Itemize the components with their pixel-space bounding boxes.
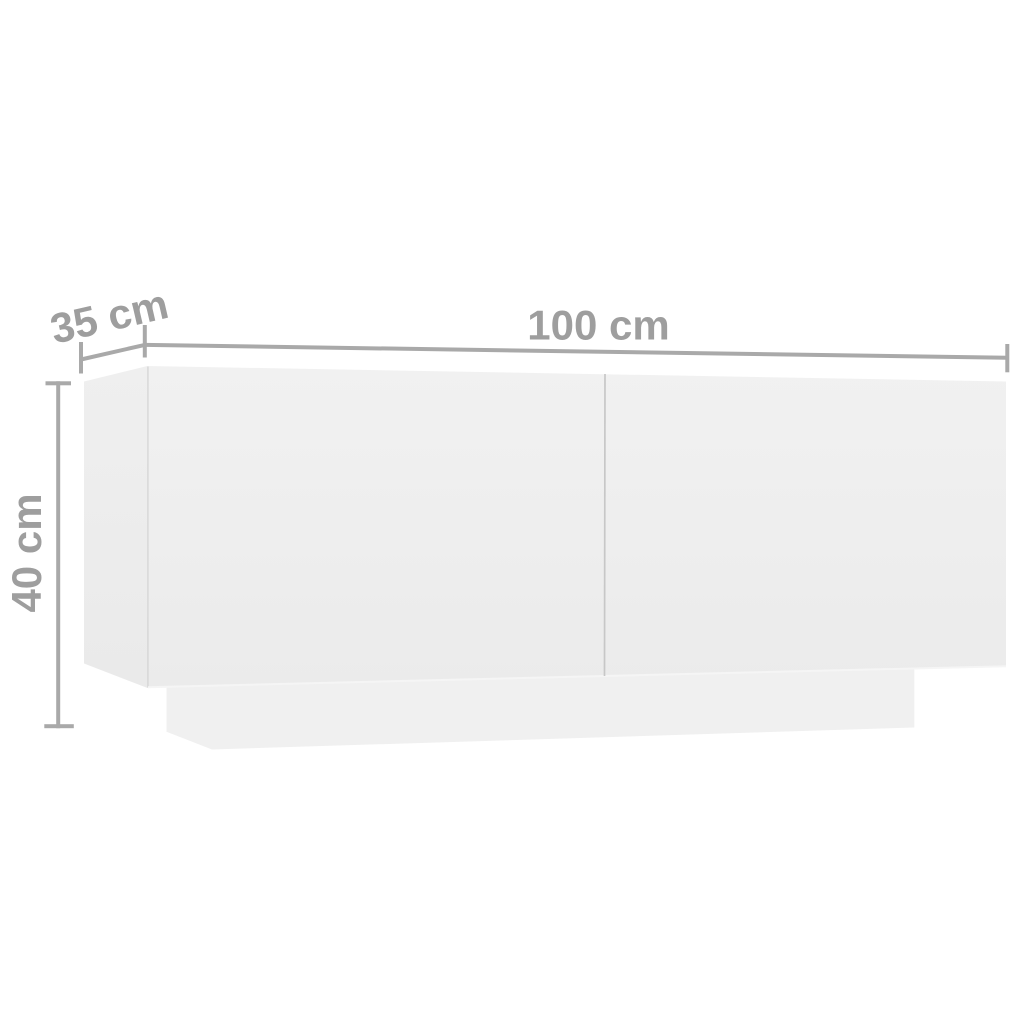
svg-text:40 cm: 40 cm — [3, 493, 50, 612]
svg-text:100 cm: 100 cm — [527, 302, 669, 349]
